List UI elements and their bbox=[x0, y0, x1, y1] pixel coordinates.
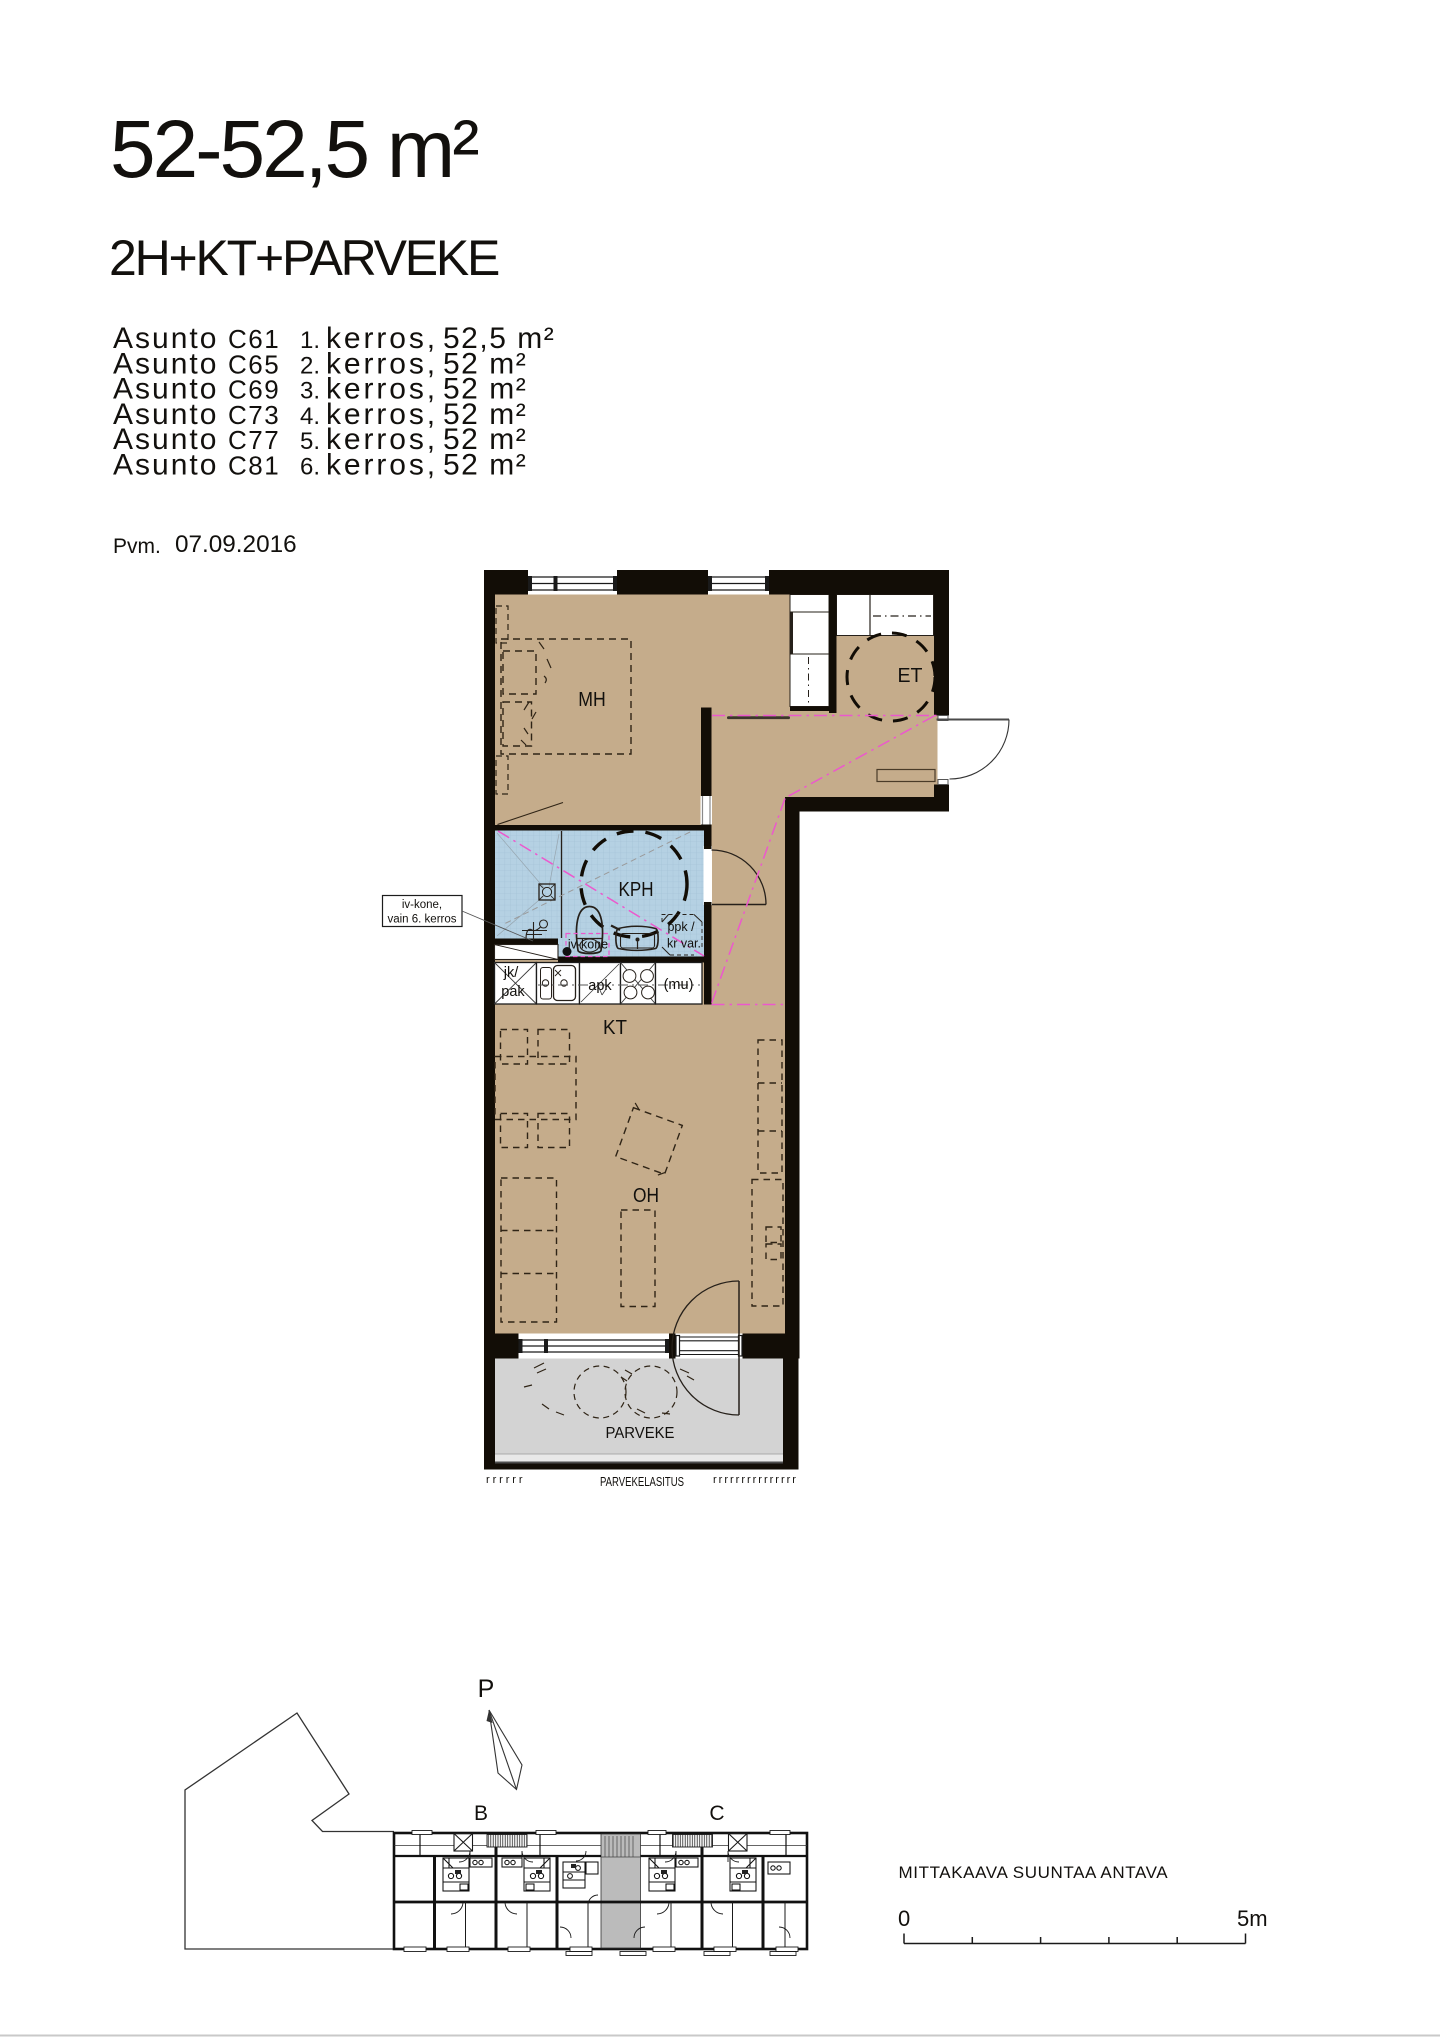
svg-text:KT: KT bbox=[603, 1016, 627, 1039]
svg-text:iv-kone: iv-kone bbox=[568, 938, 608, 952]
svg-text:P: P bbox=[478, 1675, 495, 1703]
svg-text:AsuntoC816.kerros,52 m²: AsuntoC816.kerros,52 m² bbox=[113, 449, 527, 482]
svg-text:MH: MH bbox=[578, 688, 606, 711]
svg-text:(mu): (mu) bbox=[664, 977, 694, 993]
svg-text:0: 0 bbox=[898, 1906, 910, 1931]
svg-text:MITTAKAAVA SUUNTAA ANTAVA: MITTAKAAVA SUUNTAA ANTAVA bbox=[899, 1863, 1169, 1882]
svg-text:apk: apk bbox=[588, 978, 612, 994]
svg-text:iv-kone,: iv-kone, bbox=[402, 899, 442, 911]
svg-text:rrrrrrrrrrrrrrr: rrrrrrrrrrrrrrr bbox=[713, 1474, 798, 1486]
svg-text:Pvm.: Pvm. bbox=[113, 535, 161, 558]
svg-text:kr var.: kr var. bbox=[667, 937, 701, 951]
svg-text:PARVEKELASITUS: PARVEKELASITUS bbox=[600, 1474, 684, 1489]
svg-text:OH: OH bbox=[633, 1184, 659, 1207]
svg-text:jk/: jk/ bbox=[503, 965, 519, 981]
svg-text:C: C bbox=[709, 1802, 724, 1825]
svg-text:B: B bbox=[474, 1802, 488, 1825]
svg-text:vain 6. kerros: vain 6. kerros bbox=[387, 914, 456, 926]
svg-text:07.09.2016: 07.09.2016 bbox=[175, 531, 297, 558]
svg-text:5m: 5m bbox=[1237, 1906, 1268, 1931]
svg-text:PARVEKE: PARVEKE bbox=[606, 1425, 675, 1442]
svg-text:KPH: KPH bbox=[619, 878, 654, 901]
svg-text:52-52,5 m²: 52-52,5 m² bbox=[110, 104, 478, 195]
svg-text:ET: ET bbox=[898, 664, 923, 687]
svg-text:pak: pak bbox=[501, 984, 525, 1000]
svg-text:rrrrrr: rrrrrr bbox=[486, 1474, 525, 1486]
svg-text:ppk /: ppk / bbox=[667, 920, 695, 934]
svg-text:2H+KT+PARVEKE: 2H+KT+PARVEKE bbox=[109, 230, 499, 286]
